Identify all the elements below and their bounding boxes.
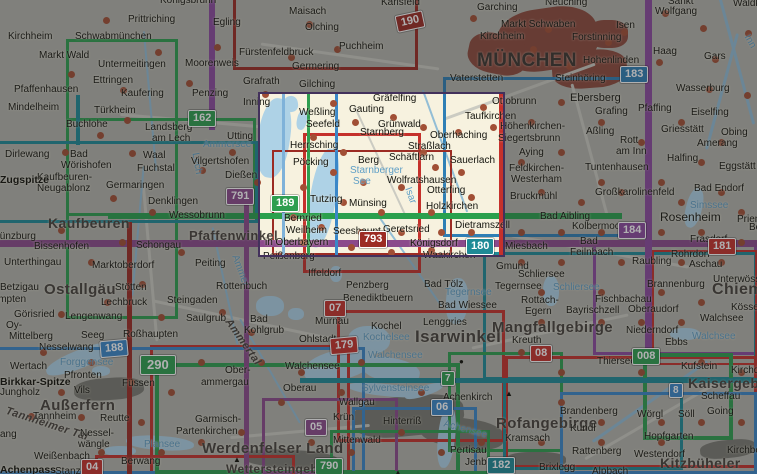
town-label: Westendorf (634, 449, 685, 460)
sheet-badge-183[interactable]: 183 (620, 66, 648, 83)
town-dot (110, 195, 117, 202)
town-label: Murnau (315, 316, 349, 327)
town-label: Wörishofen (61, 160, 112, 171)
water-label: Kochelsee (363, 332, 410, 343)
town-label: Penzberg (346, 280, 389, 291)
town-label: Kufstein (681, 361, 717, 372)
town-label: Dießen (225, 170, 257, 181)
town-label: Obing (721, 127, 748, 138)
town-dot (698, 419, 705, 426)
town-label: Kempten (0, 294, 26, 305)
town-dot (58, 389, 65, 396)
town-dot (638, 369, 645, 376)
map-canvas[interactable]: MÜNCHENKaufbeurenOstallgäuPfaffenwinkelA… (0, 0, 757, 474)
town-dot (738, 419, 745, 426)
town-label: Amerang (697, 138, 738, 149)
town-dot (138, 419, 145, 426)
sheet-badge-290[interactable]: 290 (140, 355, 176, 375)
town-label: Stötten (115, 282, 147, 293)
region-label: Isarwinkel (415, 327, 501, 347)
town-label: Wolfgang (655, 6, 697, 17)
town-dot (678, 199, 685, 206)
town-dot (155, 49, 162, 56)
water-label: Plansee (144, 439, 180, 450)
town-dot (398, 429, 405, 436)
town-label: Otterfing (427, 185, 465, 196)
town-dot (438, 449, 445, 456)
town-label: Bernried (284, 213, 322, 224)
town-dot (338, 389, 345, 396)
town-label: Bad (70, 149, 88, 160)
town-label: Wörgl (637, 409, 663, 420)
town-label: Waal (143, 150, 165, 161)
town-label: Hinterriß (383, 416, 421, 427)
town-label: Krün (333, 412, 354, 423)
town-label: Königsdorf (410, 238, 458, 249)
town-dot (470, 15, 477, 22)
town-dot (598, 419, 605, 426)
town-label: Buchlohe (66, 119, 108, 130)
town-dot (518, 229, 525, 236)
town-label: Brixlegg (539, 462, 575, 473)
town-label: Fuchstal (137, 163, 175, 174)
sheet-badge-790[interactable]: 790 (315, 458, 343, 474)
town-label: Schwabmünchen (75, 31, 152, 42)
town-label: Pfaffenhausen (14, 84, 78, 95)
town-label: Nessel- (80, 428, 114, 439)
town-label: Denklingen (148, 196, 198, 207)
town-label: Betzigau (0, 282, 39, 293)
town-dot (658, 179, 665, 186)
sheet-badge-07[interactable]: 07 (324, 300, 346, 317)
town-dot (300, 184, 307, 191)
town-label: Bad (580, 236, 598, 247)
town-label: am Inn (616, 146, 647, 157)
town-label: Egling (213, 17, 241, 28)
water-label: Forggensee (60, 357, 113, 368)
town-label: Miesbach (505, 241, 548, 252)
town-label: Tegernsee (495, 281, 542, 292)
town-label: Fürstenfeldbruck (239, 47, 313, 58)
town-label: Garmisch- (195, 414, 241, 425)
town-label: Kaufering (121, 88, 164, 99)
town-dot (348, 244, 355, 251)
water-label: Schliersee (553, 282, 600, 293)
sheet-badge-182[interactable]: 182 (487, 457, 515, 474)
town-label: Niederndorf (626, 325, 678, 336)
town-dot (678, 259, 685, 266)
peak-marker-icon: ▲ (233, 456, 241, 464)
town-label: Sauerlach (450, 155, 495, 166)
town-label: Königsbrunn (160, 0, 216, 6)
town-label: Nesselwang (39, 342, 93, 353)
town-label: wängle (78, 439, 110, 450)
town-label: Starnberg (360, 127, 404, 138)
town-label: Füssen (122, 378, 155, 389)
town-label: Pertisau (450, 445, 487, 456)
town-label: Egern (525, 306, 552, 317)
town-label: Halfing (667, 153, 698, 164)
town-label: Höhenkirchen- (500, 121, 565, 132)
sheet-badge-189[interactable]: 189 (271, 195, 299, 212)
town-label: Görisried (14, 309, 55, 320)
town-label: Hopfgarten (644, 431, 693, 442)
water-label: Walchsee (692, 331, 736, 342)
town-label: Unterwössen (713, 274, 757, 285)
town-label: Rattenberg (572, 446, 621, 457)
town-label: Weilheim (286, 225, 327, 236)
town-label: Kössen (731, 302, 757, 313)
town-label: Oy- (6, 320, 22, 331)
town-label: Germaringen (106, 180, 164, 191)
water-label: Sylvensteinsee (362, 383, 429, 394)
town-label: Karlsfeld (381, 0, 420, 8)
town-dot (278, 399, 285, 406)
town-dot (186, 80, 193, 87)
peak-label: Achenpass (0, 464, 56, 474)
town-label: Alpbach (592, 466, 628, 474)
town-label: Kolbermoor (572, 221, 624, 232)
town-dot (78, 414, 85, 421)
town-dot (700, 25, 707, 32)
town-label: Penzing (192, 88, 228, 99)
town-label: Going (707, 406, 734, 417)
town-dot (119, 239, 126, 246)
town-label: Wasserburg (676, 83, 730, 94)
town-label: Brandenberg (560, 406, 618, 417)
town-label: Kundl (570, 423, 596, 434)
town-dot (558, 229, 565, 236)
peak-label: Birkkar-Spitze (0, 376, 71, 388)
town-dot (229, 149, 236, 156)
town-dot (698, 159, 705, 166)
town-label: Ebbs (665, 337, 688, 348)
town-label: Kirchdorf (731, 365, 757, 376)
region-label: MÜNCHEN (477, 50, 577, 72)
town-label: Dirlewang (5, 149, 49, 160)
town-label: Kirchberg (727, 445, 757, 456)
sheet-edge-line (282, 92, 285, 257)
sheet-badge-162[interactable]: 162 (188, 110, 216, 127)
town-label: Schongau (136, 240, 181, 251)
town-dot (378, 209, 385, 216)
town-dot (658, 289, 665, 296)
town-label: Herrsching (290, 140, 338, 151)
town-label: Lechbruck (101, 297, 147, 308)
town-dot (124, 117, 131, 124)
town-label: Tuntenhausen (585, 162, 649, 173)
town-label: Landsberg (145, 122, 192, 133)
town-label: Kramsach (505, 433, 550, 444)
town-label: Schliersee (518, 269, 565, 280)
town-dot (468, 194, 475, 201)
town-dot (149, 209, 156, 216)
town-dot (98, 449, 105, 456)
town-label: Steinhöring (555, 73, 606, 84)
town-label: Oberaudorf (628, 304, 679, 315)
water-label: Inn (742, 33, 757, 51)
town-dot (58, 311, 65, 318)
town-label: Bad Tölz (424, 279, 463, 290)
town-label: Söll (678, 409, 695, 420)
town-dot (198, 359, 205, 366)
town-label: in Oberbayern (265, 237, 328, 248)
town-label: Utting (227, 131, 253, 142)
peak-label: Zugspitze (0, 174, 49, 186)
sheet-badge-180[interactable]: 180 (466, 238, 494, 255)
town-label: Aßling (586, 126, 614, 137)
town-label: Reutte (100, 413, 129, 424)
town-label: Ettringen (93, 75, 133, 86)
town-label: Dietramszell (455, 220, 510, 231)
town-label: Garching (477, 2, 518, 13)
town-dot (68, 71, 75, 78)
town-label: Isen (616, 20, 635, 31)
town-label: Iffeldorf (308, 268, 341, 279)
town-label: ang (0, 429, 17, 440)
sheet-badge-8[interactable]: 8 (669, 383, 683, 398)
town-label: Haag (653, 46, 677, 57)
town-label: Hohenlinden (583, 55, 639, 66)
town-dot (638, 139, 645, 146)
town-label: Lengenwang (65, 311, 122, 322)
town-label: Rott (620, 135, 638, 146)
peak-marker-icon: ● (459, 358, 464, 366)
town-label: Gräfelfing (373, 93, 416, 104)
town-label: Germering (292, 61, 339, 72)
town-label: Markt Wald (39, 50, 89, 61)
town-dot (518, 349, 525, 356)
town-dot (358, 359, 365, 366)
town-label: Rosenheim (660, 210, 721, 224)
town-label: Seefeld (306, 119, 340, 130)
town-dot (678, 319, 685, 326)
sheet-badge-05[interactable]: 05 (305, 419, 327, 436)
town-dot (432, 164, 439, 171)
peak-marker-icon: ▲ (394, 469, 402, 474)
town-dot (598, 439, 605, 446)
town-dot (558, 259, 565, 266)
town-label: Türkheim (94, 105, 136, 116)
town-dot (238, 429, 245, 436)
town-label: Gilching (299, 79, 335, 90)
region-label: Werdenfelser Land (202, 440, 344, 457)
town-label: Bad Endorf (694, 183, 744, 194)
town-label: Berg (358, 155, 379, 166)
town-dot (158, 314, 165, 321)
town-label: Oberhaching (430, 130, 487, 141)
town-label: Waldkraiburg (733, 0, 757, 9)
town-label: ammergau (201, 377, 249, 388)
town-label: Aying (519, 147, 544, 158)
town-label: Rottenbuch (216, 281, 267, 292)
town-label: Forstinning (572, 32, 621, 43)
sheet-badge-06[interactable]: 06 (431, 399, 453, 416)
town-label: Ottobrunn (492, 96, 536, 107)
town-label: Gauting (349, 104, 384, 115)
town-label: Marktoberdorf (92, 260, 154, 271)
town-label: Tannheim (33, 411, 76, 422)
town-label: Neuching (545, 0, 587, 8)
town-label: Vils (74, 385, 90, 396)
town-label: Griesstätt (661, 124, 704, 135)
town-dot (330, 169, 337, 176)
town-dot (480, 104, 487, 111)
town-label: Mittenwald (333, 435, 381, 446)
town-dot (340, 149, 347, 156)
town-label: Walchensee (285, 361, 340, 372)
lake-shape (256, 296, 284, 316)
town-dot (598, 179, 605, 186)
town-dot (558, 399, 565, 406)
town-label: Pöcking (293, 157, 329, 168)
town-label: Ober- (225, 365, 251, 376)
town-label: Bad (250, 314, 268, 325)
town-label: Thiersee (597, 356, 636, 367)
town-label: Feilnbach (570, 247, 613, 258)
town-label: Kochel (371, 321, 402, 332)
town-label: Partenkirchen (176, 426, 238, 437)
town-dot (738, 239, 745, 246)
town-dot (618, 259, 625, 266)
town-label: Roßhaupten (123, 329, 178, 340)
town-dot (352, 119, 359, 126)
town-label: Kirchheim (480, 31, 524, 42)
town-dot (558, 99, 565, 106)
town-label: Holzkirchen (426, 201, 478, 212)
town-label: Seeg (81, 330, 104, 341)
town-label: Feldkirchen- (509, 163, 564, 174)
town-dot (158, 449, 165, 456)
sheet-badge-08[interactable]: 08 (530, 345, 552, 362)
town-label: Brannenburg (647, 279, 705, 290)
sheet-badge-04[interactable]: 04 (81, 459, 103, 474)
town-label: Moorenweis (185, 58, 239, 69)
town-label: Raubling (632, 256, 671, 267)
town-label: Münsing (349, 198, 387, 209)
town-label: Puchheim (339, 41, 383, 52)
water-label: See (353, 176, 371, 187)
town-dot (598, 119, 605, 126)
town-label: Kirchheim (8, 31, 52, 42)
town-dot (490, 124, 497, 131)
town-label: Westerham (511, 174, 562, 185)
region-label: Kaisergebirge (688, 375, 757, 391)
town-dot (558, 149, 565, 156)
town-label: Unterthingau (4, 257, 61, 268)
peak-marker-icon: ▲ (505, 390, 513, 398)
town-dot (744, 92, 751, 99)
town-label: Wallgau (339, 397, 375, 408)
town-label: Oberau (283, 383, 316, 394)
town-label: Mindelheim (8, 102, 59, 113)
sheet-badge-179[interactable]: 179 (329, 336, 359, 355)
sheet-badge-181[interactable]: 181 (708, 238, 736, 255)
town-dot (388, 249, 395, 256)
town-label: Saulgrub (186, 313, 226, 324)
region-label: Ostallgäu (44, 281, 116, 298)
town-label: Jungholz (0, 387, 40, 398)
town-label: Vilgertshofen (191, 156, 249, 167)
town-label: Grafrath (243, 76, 280, 87)
sheet-badge-008[interactable]: 008 (632, 348, 660, 365)
town-dot (658, 229, 665, 236)
town-label: Bernau (749, 222, 757, 233)
town-dot (214, 44, 221, 51)
town-dot (656, 59, 663, 66)
town-dot (438, 229, 445, 236)
region-label: Kaufbeuren (48, 215, 130, 231)
town-dot (558, 369, 565, 376)
town-label: Markt Schwaben (501, 19, 575, 30)
town-dot (97, 132, 104, 139)
town-dot (458, 169, 465, 176)
region-label: Mangfallgebirge (492, 319, 613, 336)
sheet-badge-7[interactable]: 7 (441, 371, 455, 386)
town-label: Untermeitingen (98, 59, 166, 70)
town-dot (62, 149, 69, 156)
town-label: Bissenhofen (34, 241, 89, 252)
sheet-badge-791[interactable]: 791 (226, 188, 254, 205)
town-label: Wertach (10, 361, 47, 372)
town-dot (168, 389, 175, 396)
sheet-badge-188[interactable]: 188 (99, 339, 129, 358)
town-label: Peiting (195, 258, 226, 269)
sheet-badge-184[interactable]: 184 (618, 222, 646, 239)
town-label: Taufkirchen (465, 111, 516, 122)
town-dot (103, 17, 110, 24)
town-label: Bruckmühl (510, 191, 557, 202)
town-dot (420, 124, 427, 131)
town-label: Scheffau (701, 391, 740, 402)
town-label: Maisach (289, 6, 326, 17)
town-dot (348, 449, 355, 456)
town-label: Berwang (121, 456, 160, 467)
town-label: Obergünzburg (0, 231, 36, 242)
town-dot (129, 150, 136, 157)
town-label: Eggstätt (719, 161, 756, 172)
river-line (719, 0, 756, 125)
town-label: Schäftlarn (389, 152, 434, 163)
town-label: Steingaden (167, 295, 218, 306)
town-label: Geretsried (383, 224, 430, 235)
town-label: Kohlgrub (244, 325, 284, 336)
sheet-badge-793[interactable]: 793 (359, 231, 387, 248)
town-label: Pfaffing (638, 103, 672, 114)
town-label: Grafing (595, 106, 628, 117)
town-label: Olching (305, 22, 339, 33)
town-label: Bayrischzell (566, 305, 619, 316)
town-label: Ebersberg (570, 92, 621, 104)
town-dot (698, 299, 705, 306)
town-label: Walchsee (700, 313, 744, 324)
town-label: Bad Wiessee (438, 300, 497, 311)
town-label: Lenggries (423, 317, 467, 328)
town-dot (578, 199, 585, 206)
water-label: Walchensee (368, 350, 423, 361)
town-label: Tutzing (310, 194, 342, 205)
town-label: Vaterstetten (450, 73, 503, 84)
town-label: Mittelberg (9, 331, 53, 342)
town-label: Prittriching (128, 14, 175, 25)
town-label: Aschau (689, 259, 722, 270)
town-label: Weßling (299, 107, 336, 118)
town-label: Peißenberg (263, 251, 315, 262)
town-label: Gars (704, 51, 726, 62)
town-label: Großkarolinenfeld (595, 187, 674, 198)
town-label: Wessobrunn (169, 210, 225, 221)
town-label: am Lech (152, 133, 190, 144)
